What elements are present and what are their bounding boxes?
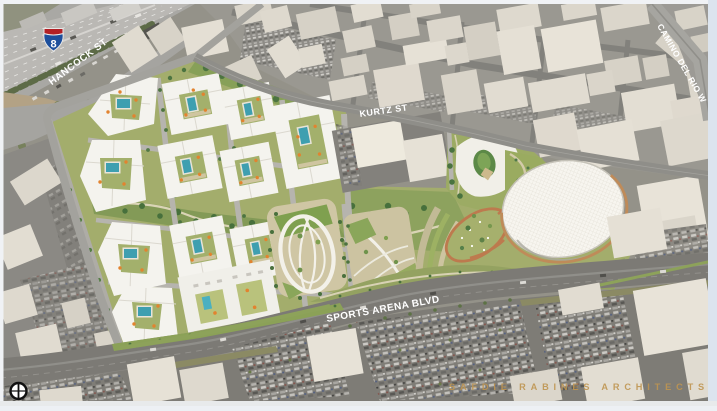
svg-text:SAFDIE RABINES ARCHITECTS: SAFDIE RABINES ARCHITECTS — [449, 382, 709, 393]
svg-text:8: 8 — [50, 39, 56, 51]
